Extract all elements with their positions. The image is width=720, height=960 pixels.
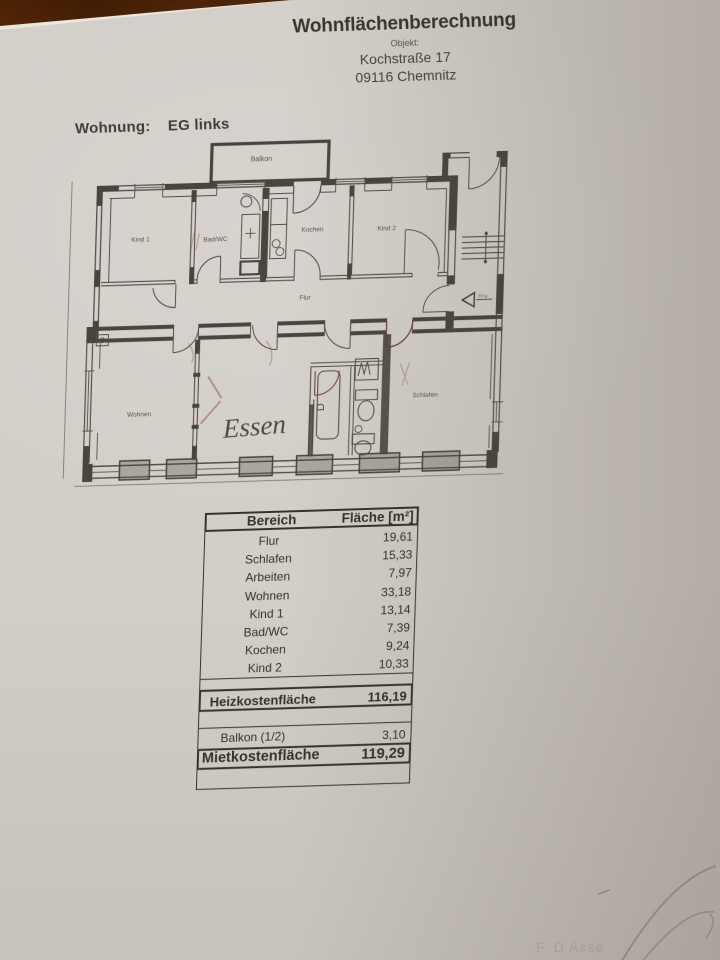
svg-text:Eing.: Eing. bbox=[478, 293, 488, 298]
svg-text:Kind 1: Kind 1 bbox=[131, 236, 150, 244]
svg-text:Kochen: Kochen bbox=[301, 226, 324, 234]
svg-text:D: D bbox=[315, 403, 327, 411]
svg-text:Flur: Flur bbox=[299, 295, 311, 302]
svg-text:F. D Asse: F. D Asse bbox=[536, 939, 604, 955]
svg-text:Kind 2: Kind 2 bbox=[377, 225, 396, 233]
svg-text:Bad/WC: Bad/WC bbox=[203, 236, 228, 244]
svg-text:Essen: Essen bbox=[222, 409, 287, 444]
svg-text:Balkon: Balkon bbox=[251, 156, 273, 164]
svg-text:Wohnen: Wohnen bbox=[127, 411, 152, 419]
svg-text:Schlafen: Schlafen bbox=[412, 392, 438, 400]
